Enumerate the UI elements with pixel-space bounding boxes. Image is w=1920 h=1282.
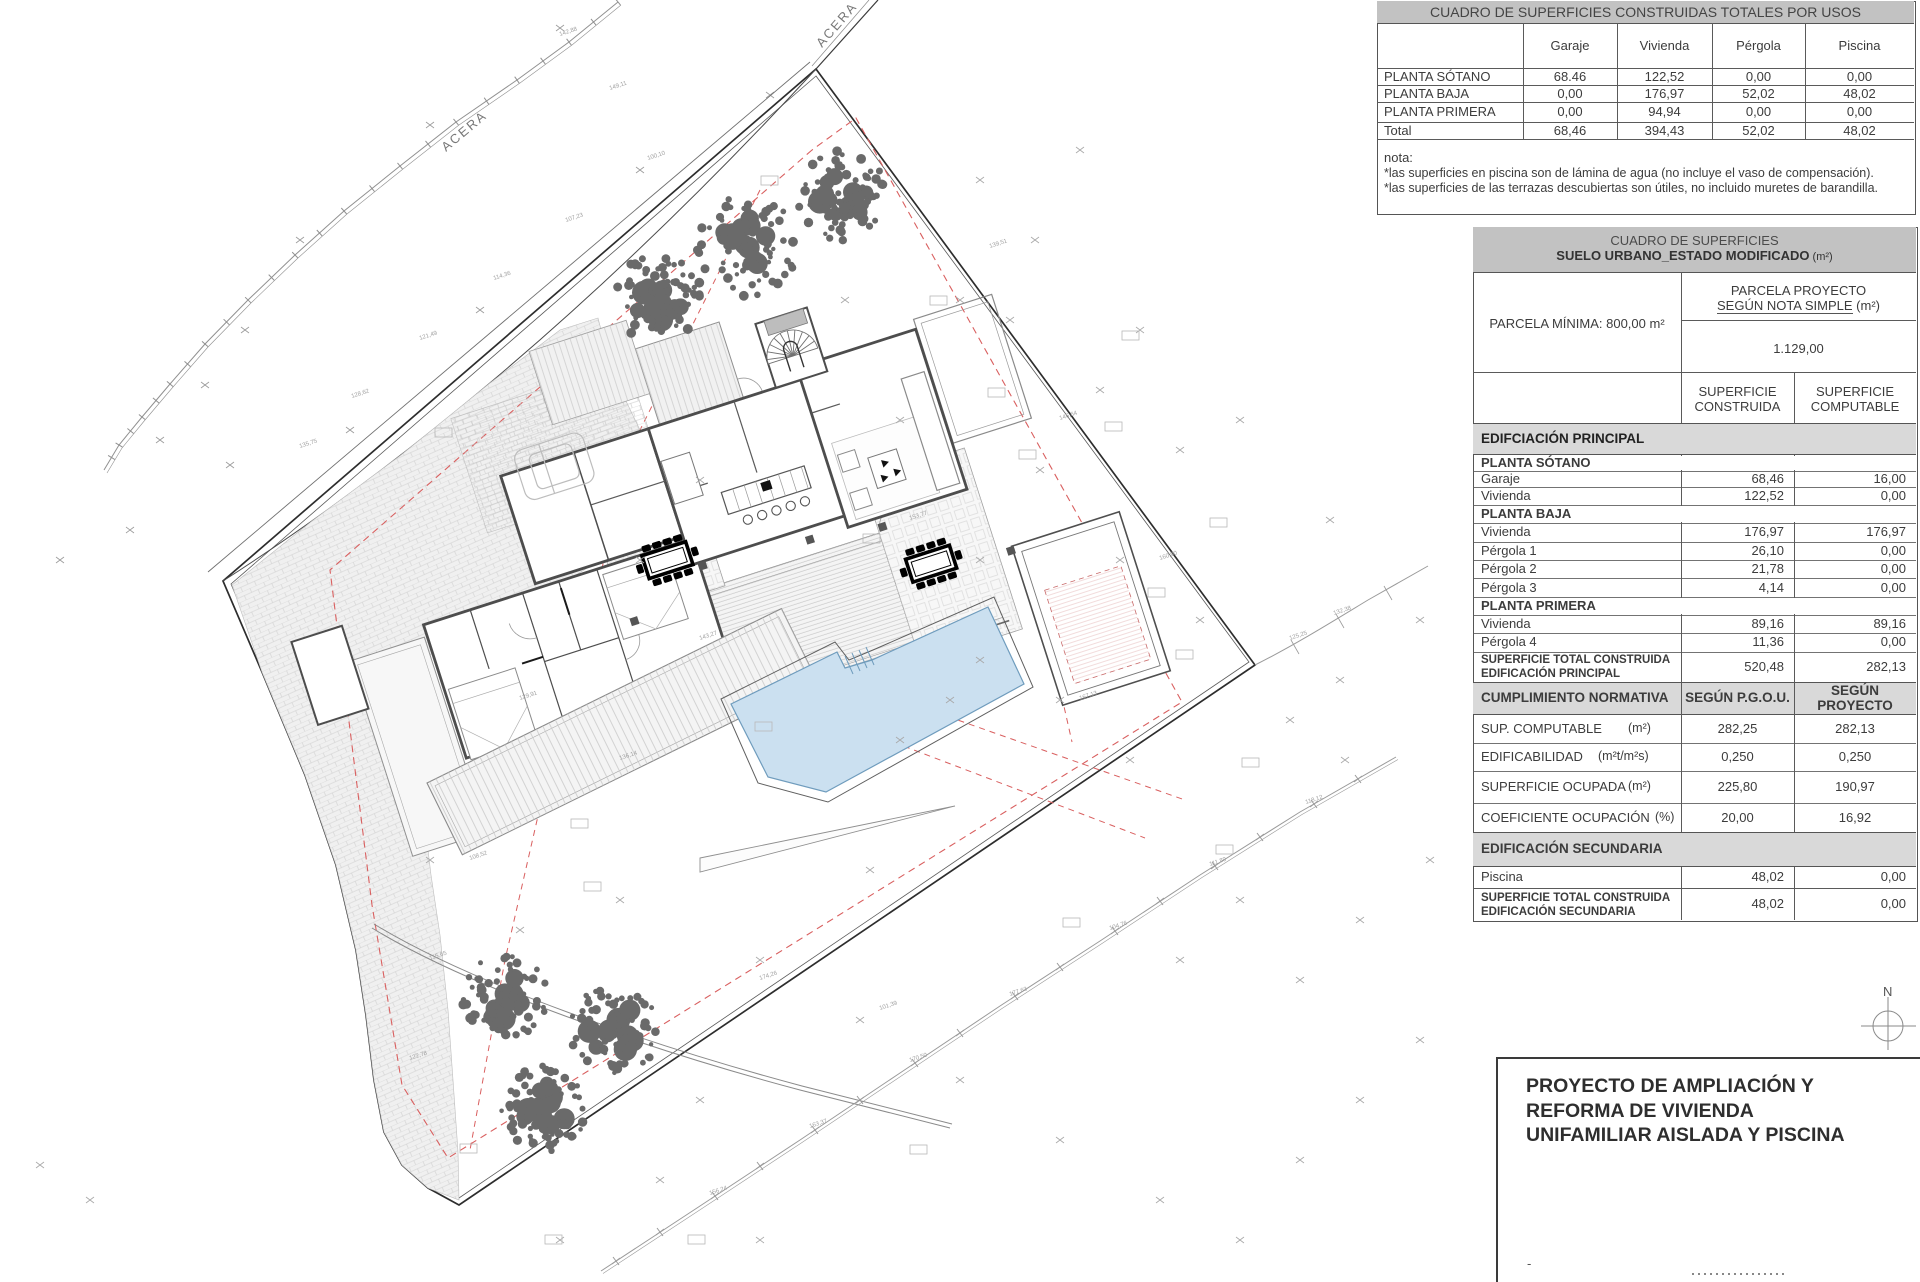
svg-text:N: N bbox=[1883, 984, 1892, 999]
svg-text:170,50: 170,50 bbox=[909, 1052, 929, 1064]
svg-text:100,10: 100,10 bbox=[647, 150, 667, 162]
svg-text:156,24: 156,24 bbox=[709, 1185, 729, 1197]
svg-text:121,49: 121,49 bbox=[419, 330, 439, 342]
svg-text:128,62: 128,62 bbox=[351, 388, 371, 400]
svg-text:ACERA: ACERA bbox=[813, 0, 860, 50]
svg-text:108,52: 108,52 bbox=[469, 850, 489, 862]
svg-text:163,37: 163,37 bbox=[809, 1118, 829, 1130]
svg-text:149,11: 149,11 bbox=[609, 80, 629, 91]
svg-text:160,90: 160,90 bbox=[1159, 550, 1179, 562]
svg-text:104,76: 104,76 bbox=[1109, 920, 1129, 932]
svg-text:177,63: 177,63 bbox=[1009, 986, 1029, 998]
svg-text:101,39: 101,39 bbox=[879, 1000, 899, 1012]
svg-text:139,51: 139,51 bbox=[989, 238, 1009, 250]
svg-text:ACERA: ACERA bbox=[438, 108, 490, 155]
svg-text:125,25: 125,25 bbox=[1289, 630, 1309, 642]
svg-text:107,23: 107,23 bbox=[565, 212, 585, 224]
svg-text:135,75: 135,75 bbox=[299, 438, 319, 450]
svg-text:111,89: 111,89 bbox=[1209, 857, 1228, 868]
svg-text:174,26: 174,26 bbox=[759, 970, 779, 982]
svg-text:114,36: 114,36 bbox=[493, 270, 513, 281]
